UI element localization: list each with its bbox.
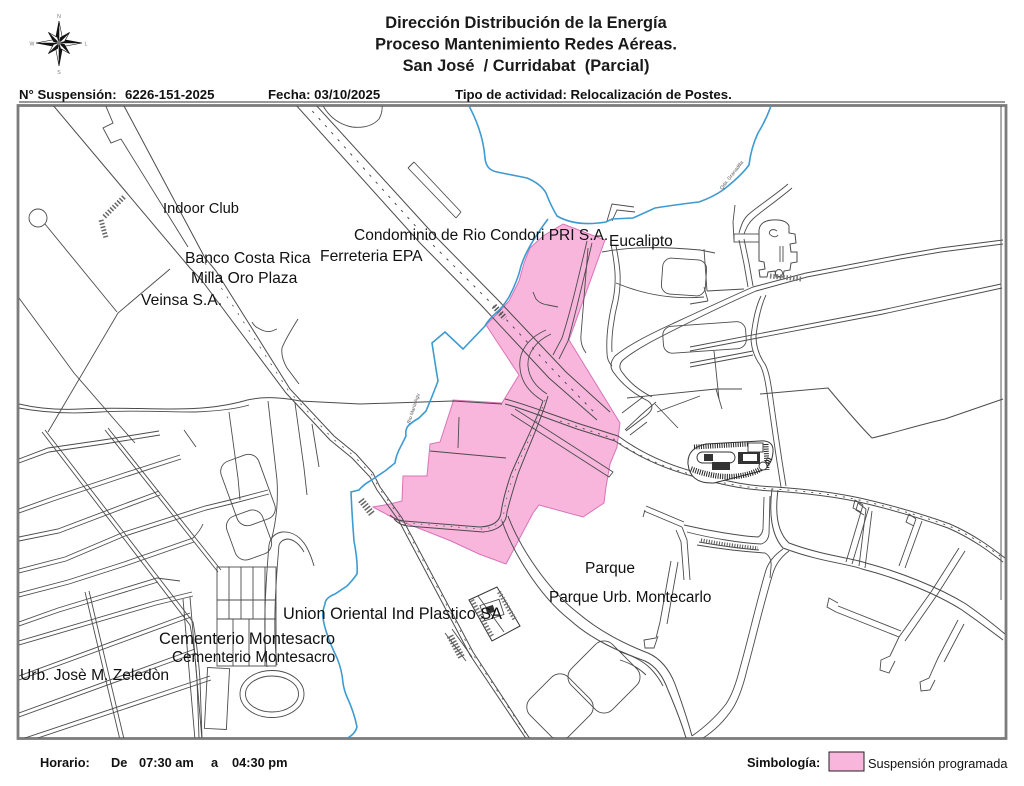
svg-text:Eucalipto: Eucalipto xyxy=(609,233,673,250)
svg-text:Fecha: 03/10/2025: Fecha: 03/10/2025 xyxy=(268,87,380,102)
svg-text:De: De xyxy=(111,755,127,770)
svg-text:Condominio de Rio Condori PRI: Condominio de Rio Condori PRI S.A. xyxy=(354,227,608,244)
svg-text:S: S xyxy=(57,70,61,76)
svg-text:L: L xyxy=(85,42,88,48)
svg-text:Indoor Club: Indoor Club xyxy=(163,201,239,217)
svg-text:Milla Oro Plaza: Milla Oro Plaza xyxy=(191,270,298,287)
svg-text:Simbología:: Simbología: xyxy=(747,755,820,770)
svg-text:Ferreteria EPA: Ferreteria EPA xyxy=(320,248,423,265)
svg-text:Tipo de actividad: Relocaliza: Tipo de actividad: Relocalización de Pos… xyxy=(455,87,732,102)
svg-text:N: N xyxy=(57,14,61,20)
svg-text:Banco Costa Rica: Banco Costa Rica xyxy=(185,250,311,267)
svg-text:Horario:: Horario: xyxy=(40,755,90,770)
svg-text:04:30 pm: 04:30 pm xyxy=(232,755,287,770)
svg-text:San José / Curridabat (Parci: San José / Curridabat (Parcial) xyxy=(403,57,650,75)
svg-text:W: W xyxy=(30,42,35,48)
svg-text:N° Suspensión:: N° Suspensión: xyxy=(19,87,117,102)
svg-text:07:30 am: 07:30 am xyxy=(139,755,194,770)
svg-text:Suspensión programada: Suspensión programada xyxy=(868,756,1008,771)
svg-text:Union Oriental Ind Plastico SA: Union Oriental Ind Plastico SA xyxy=(283,605,502,623)
svg-text:Proceso Mantenimiento Redes Aé: Proceso Mantenimiento Redes Aéreas. xyxy=(375,36,677,54)
svg-text:Veinsa S.A.: Veinsa S.A. xyxy=(141,292,222,309)
svg-text:Cementerio Montesacro: Cementerio Montesacro xyxy=(159,630,335,648)
svg-text:Cementerio Montesacro: Cementerio Montesacro xyxy=(172,649,335,666)
svg-text:Parque: Parque xyxy=(585,560,635,577)
svg-text:Urb. Josè M. Zeledòn: Urb. Josè M. Zeledòn xyxy=(20,667,169,684)
svg-text:a: a xyxy=(211,755,219,770)
svg-text:Dirección Distribución de la E: Dirección Distribución de la Energía xyxy=(385,14,667,32)
svg-text:Parque Urb. Montecarlo: Parque Urb. Montecarlo xyxy=(549,589,711,606)
svg-text:6226-151-2025: 6226-151-2025 xyxy=(125,87,214,102)
